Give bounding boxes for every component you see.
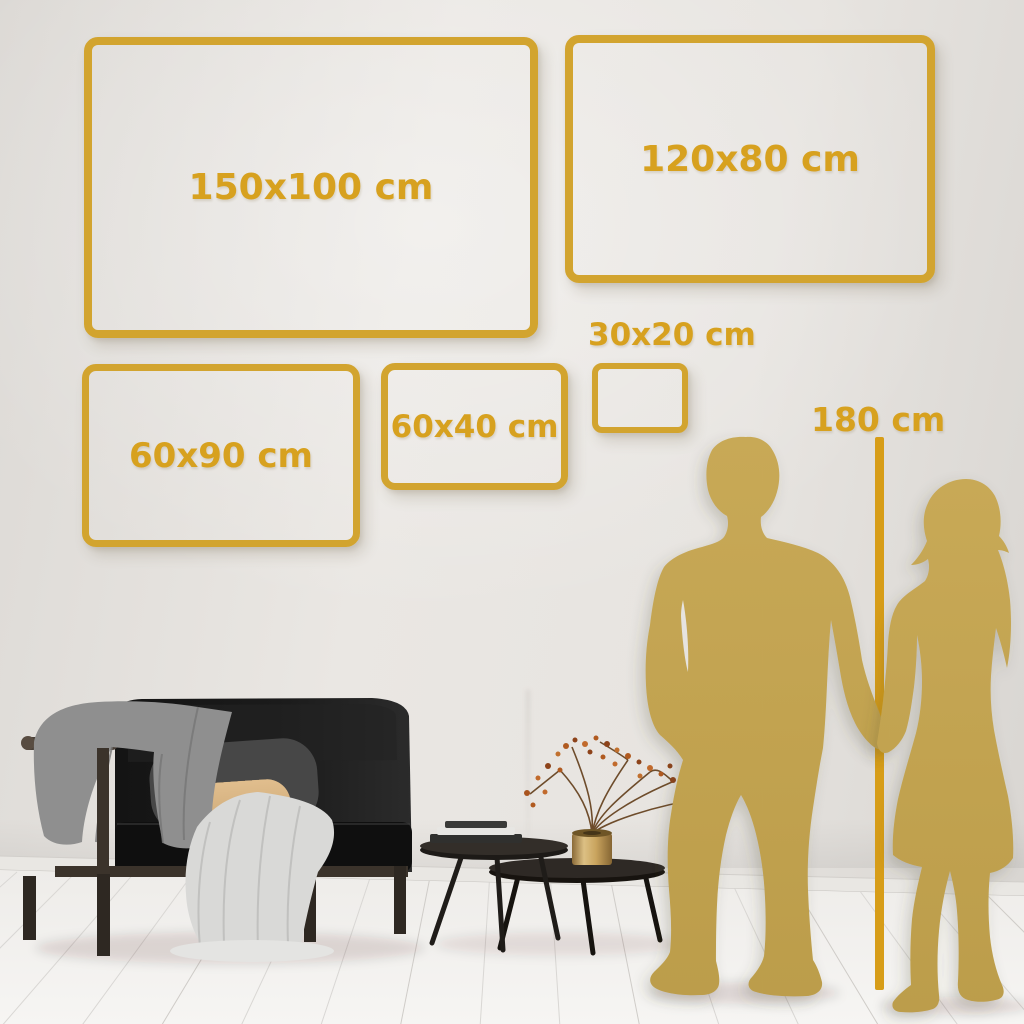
- size-label-120x80: 120x80 cm: [640, 139, 860, 180]
- book: [430, 834, 522, 843]
- brass-vase: [572, 833, 612, 865]
- size-label-60x90: 60x90 cm: [129, 436, 313, 476]
- size-box-60x40: 60x40 cm: [381, 363, 568, 490]
- size-box-120x80: 120x80 cm: [565, 35, 935, 283]
- height-marker-label: 180 cm: [811, 400, 943, 439]
- size-box-60x90: 60x90 cm: [82, 364, 360, 547]
- throw-pool: [170, 940, 334, 962]
- size-label-150x100: 150x100 cm: [189, 167, 434, 208]
- wood-post: [97, 748, 109, 874]
- sofa-leg: [23, 876, 36, 940]
- book: [445, 821, 507, 828]
- size-box-150x100: 150x100 cm: [84, 37, 538, 338]
- sofa-leg: [97, 874, 110, 956]
- wall-art-size-guide: 150x100 cm 120x80 cm 60x90 cm 60x40 cm 3…: [0, 0, 1024, 1024]
- size-label-30x20: 30x20 cm: [588, 317, 744, 353]
- sofa-leg: [394, 866, 406, 934]
- size-box-30x20: [592, 363, 688, 433]
- size-label-60x40: 60x40 cm: [391, 409, 559, 445]
- book: [437, 827, 515, 835]
